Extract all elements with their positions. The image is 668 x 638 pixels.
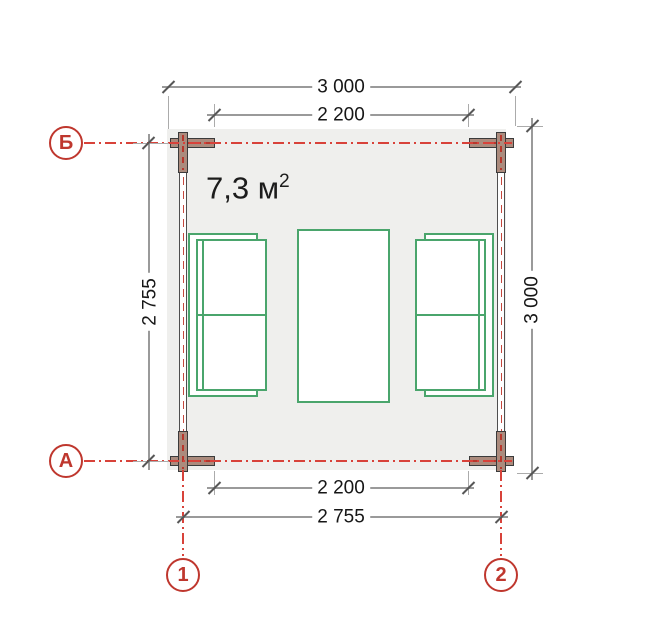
bench-left-seat-divider — [197, 314, 266, 316]
extension-line — [133, 461, 169, 462]
dim-label-bottom-outer: 2 755 — [312, 507, 370, 528]
bench-right-seat-divider — [416, 314, 485, 316]
wall-left — [179, 132, 187, 472]
corner-post-top-left-v — [178, 132, 188, 173]
extension-line — [214, 471, 215, 495]
axis-line-col-1 — [182, 470, 184, 556]
extension-line — [133, 143, 169, 144]
extension-line — [168, 96, 169, 129]
axis-marker-row-b-label: Б — [59, 132, 73, 155]
dim-label-top-outer: 3 000 — [312, 77, 370, 98]
axis-marker-col-1-label: 1 — [177, 564, 188, 587]
corner-post-bottom-left-v — [178, 431, 188, 472]
corner-post-bottom-right-v — [496, 431, 506, 472]
extension-line — [515, 96, 516, 126]
axis-marker-row-a-label: А — [59, 450, 73, 473]
axis-line-col-2 — [500, 470, 502, 556]
dim-label-left: 2 755 — [140, 273, 161, 331]
room-area-sup: 2 — [279, 171, 290, 192]
dim-label-bottom-inner: 2 200 — [312, 478, 370, 499]
axis-marker-col-2-label: 2 — [495, 564, 506, 587]
wall-right — [497, 132, 505, 472]
corner-post-top-right-v — [496, 132, 506, 173]
wall-left-centerline — [183, 135, 185, 469]
dim-label-top-inner: 2 200 — [312, 105, 370, 126]
extension-line — [468, 471, 469, 495]
table — [297, 229, 390, 403]
axis-marker-col-1: 1 — [166, 558, 200, 592]
axis-marker-col-2: 2 — [484, 558, 518, 592]
wall-right-centerline — [501, 135, 503, 469]
room-area-label: 7,3 м2 — [206, 172, 290, 203]
room-area-value: 7,3 м — [206, 170, 279, 205]
floor-plan-canvas: 3 000 2 200 2 200 2 755 2 755 3 000 Б А … — [0, 0, 668, 638]
axis-marker-row-a: А — [49, 444, 83, 478]
dim-label-right: 3 000 — [522, 271, 543, 329]
axis-marker-row-b: Б — [49, 126, 83, 160]
